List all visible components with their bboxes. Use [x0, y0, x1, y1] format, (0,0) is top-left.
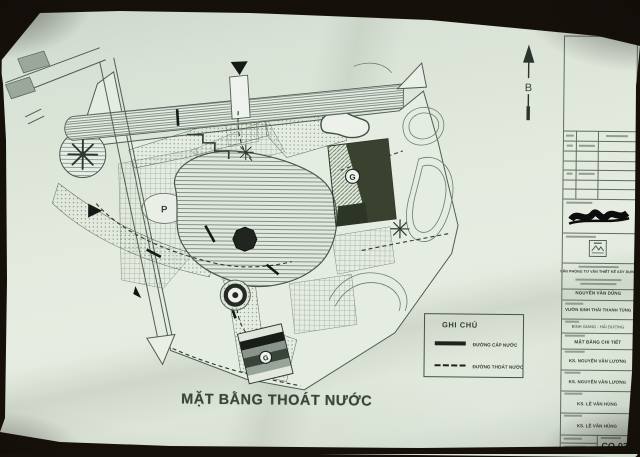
project-location: BÌNH GIANG - HẢI DƯƠNG — [572, 325, 624, 330]
drawing-sheet: G G P — [0, 0, 640, 457]
north-arrow: B — [523, 46, 534, 120]
company-name: VĂN PHÒNG TƯ VẤN THIẾT KẾ XÂY DỰNG — [560, 270, 637, 275]
entrance-culvert — [229, 75, 250, 119]
illegible-text — [567, 173, 573, 175]
illegible-text — [606, 135, 628, 137]
road-end-arrow — [397, 63, 426, 89]
tree-icon — [68, 140, 97, 169]
drawn-by: KS. NGUYỄN VĂN LƯƠNG — [569, 380, 627, 385]
divider — [563, 199, 635, 201]
table-row-line — [564, 161, 636, 163]
illegible-text — [580, 283, 616, 285]
illegible-text — [564, 372, 580, 374]
gazebo — [233, 227, 257, 251]
designed-by: KS. NGUYỄN VĂN LƯƠNG — [569, 359, 627, 364]
table-row-line — [564, 151, 636, 153]
north-label: B — [525, 82, 532, 94]
dashed-line-swatch — [435, 364, 466, 366]
north-tick-marker — [231, 61, 248, 75]
site-plan-svg: G G P — [0, 0, 640, 457]
approved-by: KS. LÊ VĂN HÙNG — [577, 424, 617, 429]
illegible-text — [564, 438, 582, 440]
fountain — [220, 280, 250, 310]
illegible-text — [565, 335, 585, 337]
table-row-line — [563, 180, 635, 182]
company-logo-icon — [589, 240, 607, 257]
illegible-text — [566, 135, 574, 137]
photo-of-drawing: { "plan": { "title": "MẶT BẰNG THOÁT NƯỚ… — [0, 0, 640, 454]
main-building: G — [327, 138, 397, 227]
title-block: VĂN PHÒNG TƯ VẤN THIẾT KẾ XÂY DỰNG NGUYỄ… — [560, 36, 638, 454]
tree-icon — [391, 220, 409, 238]
illegible-text — [564, 446, 586, 448]
drawing-title-field: MẶT BẰNG CHI TIẾT — [574, 340, 621, 346]
illegible-text — [579, 266, 619, 268]
illegible-text — [565, 321, 579, 323]
illegible-text — [566, 236, 596, 238]
table-row-line — [563, 189, 635, 191]
illegible-text — [575, 279, 621, 281]
divider — [561, 443, 597, 444]
sheet-title: MẶT BẰNG THOÁT NƯỚC — [181, 392, 372, 410]
illegible-text — [579, 173, 595, 175]
checked-by: KS. LÊ VĂN HÙNG — [577, 402, 617, 407]
flow-arrow-small — [133, 286, 141, 298]
illegible-text — [567, 145, 573, 147]
divider — [564, 131, 636, 133]
building-marker-label: G — [349, 173, 355, 182]
table-row-line — [564, 170, 636, 172]
divider — [563, 263, 635, 265]
solid-line-swatch — [435, 341, 466, 345]
parking-label: P — [161, 204, 168, 215]
divider — [562, 300, 634, 302]
table-row-line — [564, 141, 636, 143]
illegible-text — [601, 437, 621, 439]
illegible-text — [565, 351, 585, 353]
legend-title: GHI CHÚ — [442, 320, 478, 329]
illegible-text — [565, 303, 583, 305]
illegible-text — [564, 393, 582, 395]
drawing-number: CQ-03 — [598, 441, 632, 451]
legend-item-label: ĐƯỜNG CẤP NƯỚC — [473, 343, 518, 349]
legend-box: GHI CHÚ ĐƯỜNG CẤP NƯỚC ĐƯỜNG THOÁT NƯỚC — [423, 313, 524, 378]
architect-name: NGUYỄN VĂN DŨNG — [575, 291, 621, 296]
project-name: VƯỜN SINH THÁI THANH TÙNG — [565, 308, 631, 313]
legend-item-label: ĐƯỜNG THOÁT NƯỚC — [473, 365, 524, 371]
tree-icon — [238, 145, 253, 160]
illegible-text — [564, 415, 582, 417]
signature-scribble — [567, 204, 631, 231]
illegible-text — [579, 145, 595, 147]
divider — [563, 233, 635, 235]
